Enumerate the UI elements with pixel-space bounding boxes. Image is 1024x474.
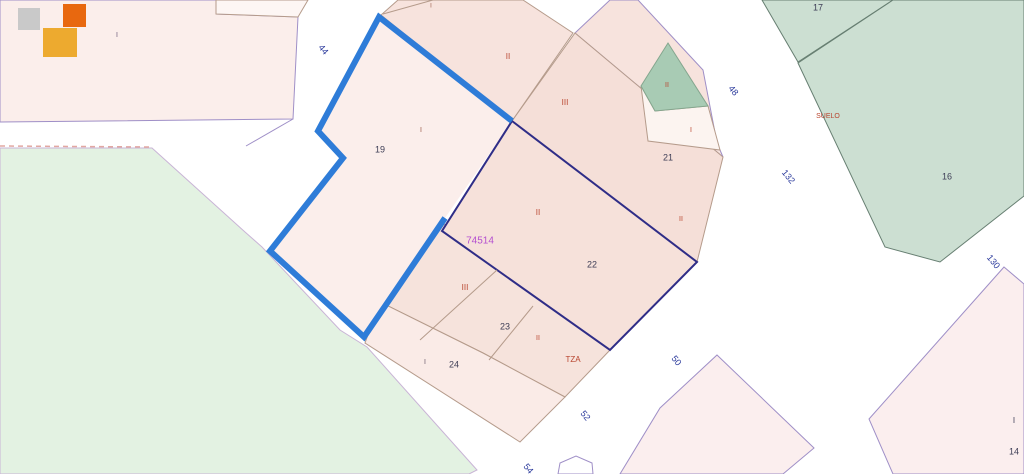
map-label-50: 50 bbox=[669, 354, 683, 368]
street-dashed-edge bbox=[0, 146, 153, 147]
map-label-54: 54 bbox=[521, 462, 535, 474]
parcel-14[interactable] bbox=[869, 267, 1024, 474]
map-label-ii: II bbox=[536, 208, 540, 217]
map-label-i: I bbox=[420, 127, 422, 134]
map-label-ii: II bbox=[536, 335, 540, 342]
map-label-48: 48 bbox=[726, 84, 740, 98]
map-label-i: I bbox=[690, 127, 692, 134]
map-label-ii: II bbox=[506, 52, 510, 61]
parcel-top-notch[interactable] bbox=[216, 0, 308, 17]
map-label-52: 52 bbox=[578, 409, 592, 423]
map-label-iii: III bbox=[562, 98, 569, 107]
map-label-iii: III bbox=[462, 283, 469, 292]
cadastral-map-viewport[interactable]: I44I19IIIIIIIII21II17SUELO48132161307451… bbox=[0, 0, 1024, 474]
map-label-22: 22 bbox=[587, 259, 597, 269]
map-label-16: 16 bbox=[942, 171, 952, 181]
street-edge-corner bbox=[246, 119, 293, 146]
map-label-i: I bbox=[424, 359, 426, 366]
cadastral-map-canvas[interactable]: I44I19IIIIIIIII21II17SUELO48132161307451… bbox=[0, 0, 1024, 474]
map-label-23: 23 bbox=[500, 321, 510, 331]
map-label-44: 44 bbox=[316, 43, 330, 57]
map-label-130: 130 bbox=[985, 253, 1002, 271]
map-label-i: I bbox=[1013, 416, 1015, 425]
map-label-tza: TZA bbox=[565, 355, 581, 364]
map-label-i: I bbox=[116, 32, 118, 39]
map-label-24: 24 bbox=[449, 359, 459, 369]
map-label-14: 14 bbox=[1009, 446, 1019, 456]
map-label-132: 132 bbox=[780, 168, 797, 186]
map-label-74514: 74514 bbox=[466, 236, 494, 247]
logo-square-orange bbox=[63, 4, 86, 27]
logo-square-gray bbox=[18, 8, 40, 30]
street-bottom-shape bbox=[558, 456, 593, 474]
map-label-17: 17 bbox=[813, 2, 823, 12]
parcel-topleft[interactable] bbox=[0, 0, 298, 122]
parcel-bottom-diamond[interactable] bbox=[620, 355, 814, 474]
map-label-ii: II bbox=[665, 82, 669, 89]
map-label-ii: II bbox=[679, 216, 683, 223]
map-label-21: 21 bbox=[663, 152, 673, 162]
logo-square-amber bbox=[43, 28, 77, 57]
map-label-19: 19 bbox=[375, 144, 385, 154]
map-label-suelo: SUELO bbox=[816, 113, 840, 120]
